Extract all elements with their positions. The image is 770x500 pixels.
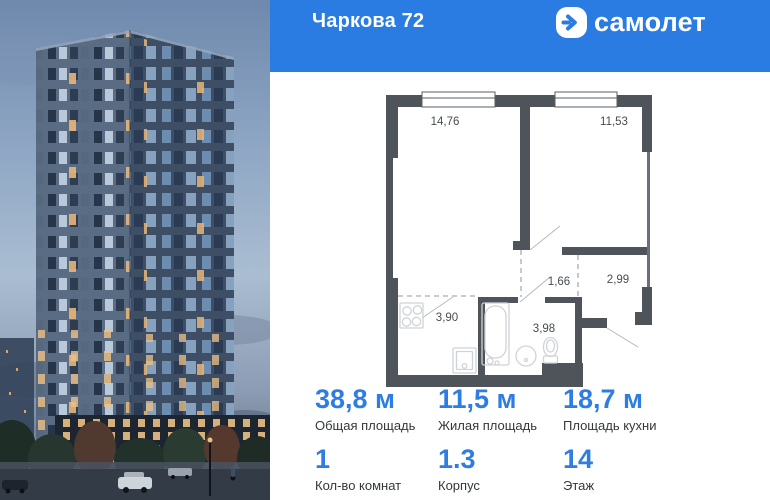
lamp-light [208,438,213,443]
stat-label: Кол-во комнат [315,478,435,493]
stat-value: 14 [563,446,683,473]
stat-living-area: 11,5 м Жилая площадь [438,386,558,433]
kitchen-sink-icon [453,348,476,373]
stat-value: 11,5 м [438,386,558,413]
stat-value: 38,8 м [315,386,435,413]
room-label-kitchen: 3,90 [436,312,458,324]
stat-label: Корпус [438,478,558,493]
stat-floor: 14 Этаж [563,446,683,493]
floor-plan-walls [386,95,652,387]
stat-total-area: 38,8 м Общая площадь [315,386,435,433]
building-scene [0,0,270,500]
lamp-pole [209,440,211,496]
dashed-zone-lines [398,250,578,297]
right-wall-window [647,152,650,287]
bathtub-icon [482,303,509,365]
stat-value: 1 [315,446,435,473]
room-label-bedroom: 11,53 [600,116,628,128]
brand-logo: самолет [556,7,706,38]
tower [30,25,254,474]
stat-label: Общая площадь [315,418,435,433]
cyclist [231,468,236,481]
room-label-living: 14,76 [431,116,460,128]
stat-value: 18,7 м [563,386,683,413]
room-label-corridor: 2,99 [607,274,629,286]
stat-kitchen-area: 18,7 м Площадь кухни [563,386,683,433]
washbasin-icon [516,346,536,366]
header-bar: Чаркова 72 самолет [270,0,770,72]
room-label-bathroom: 3,98 [533,323,555,335]
project-title: Чаркова 72 [312,10,424,33]
building-photo [0,0,270,500]
info-panel: Чаркова 72 самолет [270,0,770,500]
arrow-right-circle-icon [556,7,587,38]
stove-icon [400,303,423,328]
floor-plan: 14,76 11,53 1,66 2,99 3,90 3,98 [380,85,660,390]
stat-building: 1.3 Корпус [438,446,558,493]
stat-label: Жилая площадь [438,418,558,433]
sidewalk [0,462,270,469]
left-wall-thin-section [393,158,398,278]
listing-card: Чаркова 72 самолет [0,0,770,500]
toilet-icon [544,338,558,364]
stat-value: 1.3 [438,446,558,473]
stat-label: Этаж [563,478,683,493]
stat-label: Площадь кухни [563,418,683,433]
brand-name: самолет [594,7,706,38]
stat-rooms-count: 1 Кол-во комнат [315,446,435,493]
room-label-hall: 1,66 [548,276,570,288]
